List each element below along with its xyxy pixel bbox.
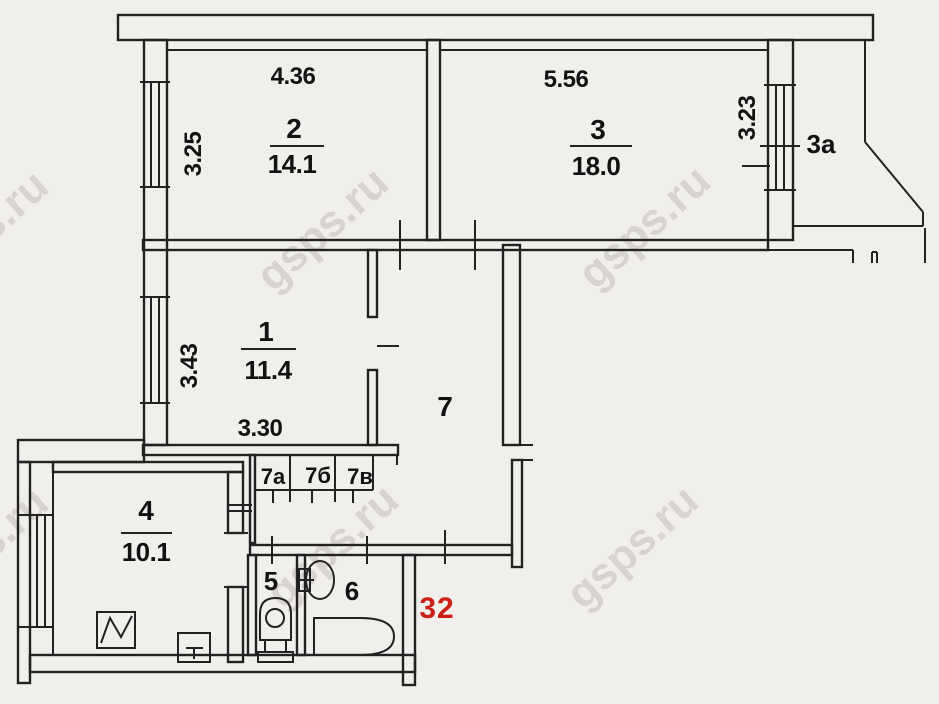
kitchen-4-number: 4 — [138, 495, 154, 526]
kitchen-sink-icon — [178, 633, 210, 662]
room-2-width-dim: 4.36 — [271, 63, 316, 90]
walls — [18, 15, 925, 685]
floor-plan-drawing: gsps.ru gsps.ru gsps.ru gsps.ru gsps.ru … — [0, 0, 939, 704]
room-1-width-dim: 3.30 — [238, 415, 283, 442]
room-1-depth-dim: 3.43 — [176, 343, 203, 388]
room-3-area: 18.0 — [572, 151, 621, 181]
room-3-depth-dim: 3.23 — [734, 95, 761, 140]
room-3-number: 3 — [590, 114, 606, 145]
closet-7a-label: 7а — [261, 464, 286, 489]
closet-7b-label: 7б — [305, 463, 331, 488]
room-2-number: 2 — [286, 113, 302, 144]
watermark-text: gsps.ru — [557, 476, 708, 619]
bath-6-label: 6 — [345, 576, 359, 606]
watermark-text: gsps.ru — [247, 158, 398, 301]
watermark-text: gsps.ru — [0, 161, 58, 304]
watermark-text: gsps.ru — [257, 475, 408, 618]
closet-7v-label: 7в — [347, 464, 373, 489]
labels: 4.36 3.25 2 14.1 5.56 3.23 3 18.0 3а 1 1… — [122, 63, 836, 625]
stove-icon — [97, 612, 135, 648]
watermark-layer: gsps.ru gsps.ru gsps.ru gsps.ru gsps.ru … — [0, 156, 720, 621]
room-1-number: 1 — [258, 316, 274, 347]
room-2-area: 14.1 — [268, 149, 317, 179]
bathtub-icon — [314, 618, 394, 655]
balcony-3a-label: 3а — [807, 129, 836, 159]
hall-7-label: 7 — [437, 391, 453, 422]
wc-5-label: 5 — [264, 566, 278, 596]
apartment-number: 32 — [419, 592, 454, 625]
room-2-depth-dim: 3.25 — [180, 131, 207, 176]
floor-plan: gsps.ru gsps.ru gsps.ru gsps.ru gsps.ru … — [0, 0, 939, 704]
room-1-area: 11.4 — [244, 355, 292, 385]
kitchen-4-area: 10.1 — [122, 537, 171, 567]
room-3-width-dim: 5.56 — [544, 66, 589, 93]
